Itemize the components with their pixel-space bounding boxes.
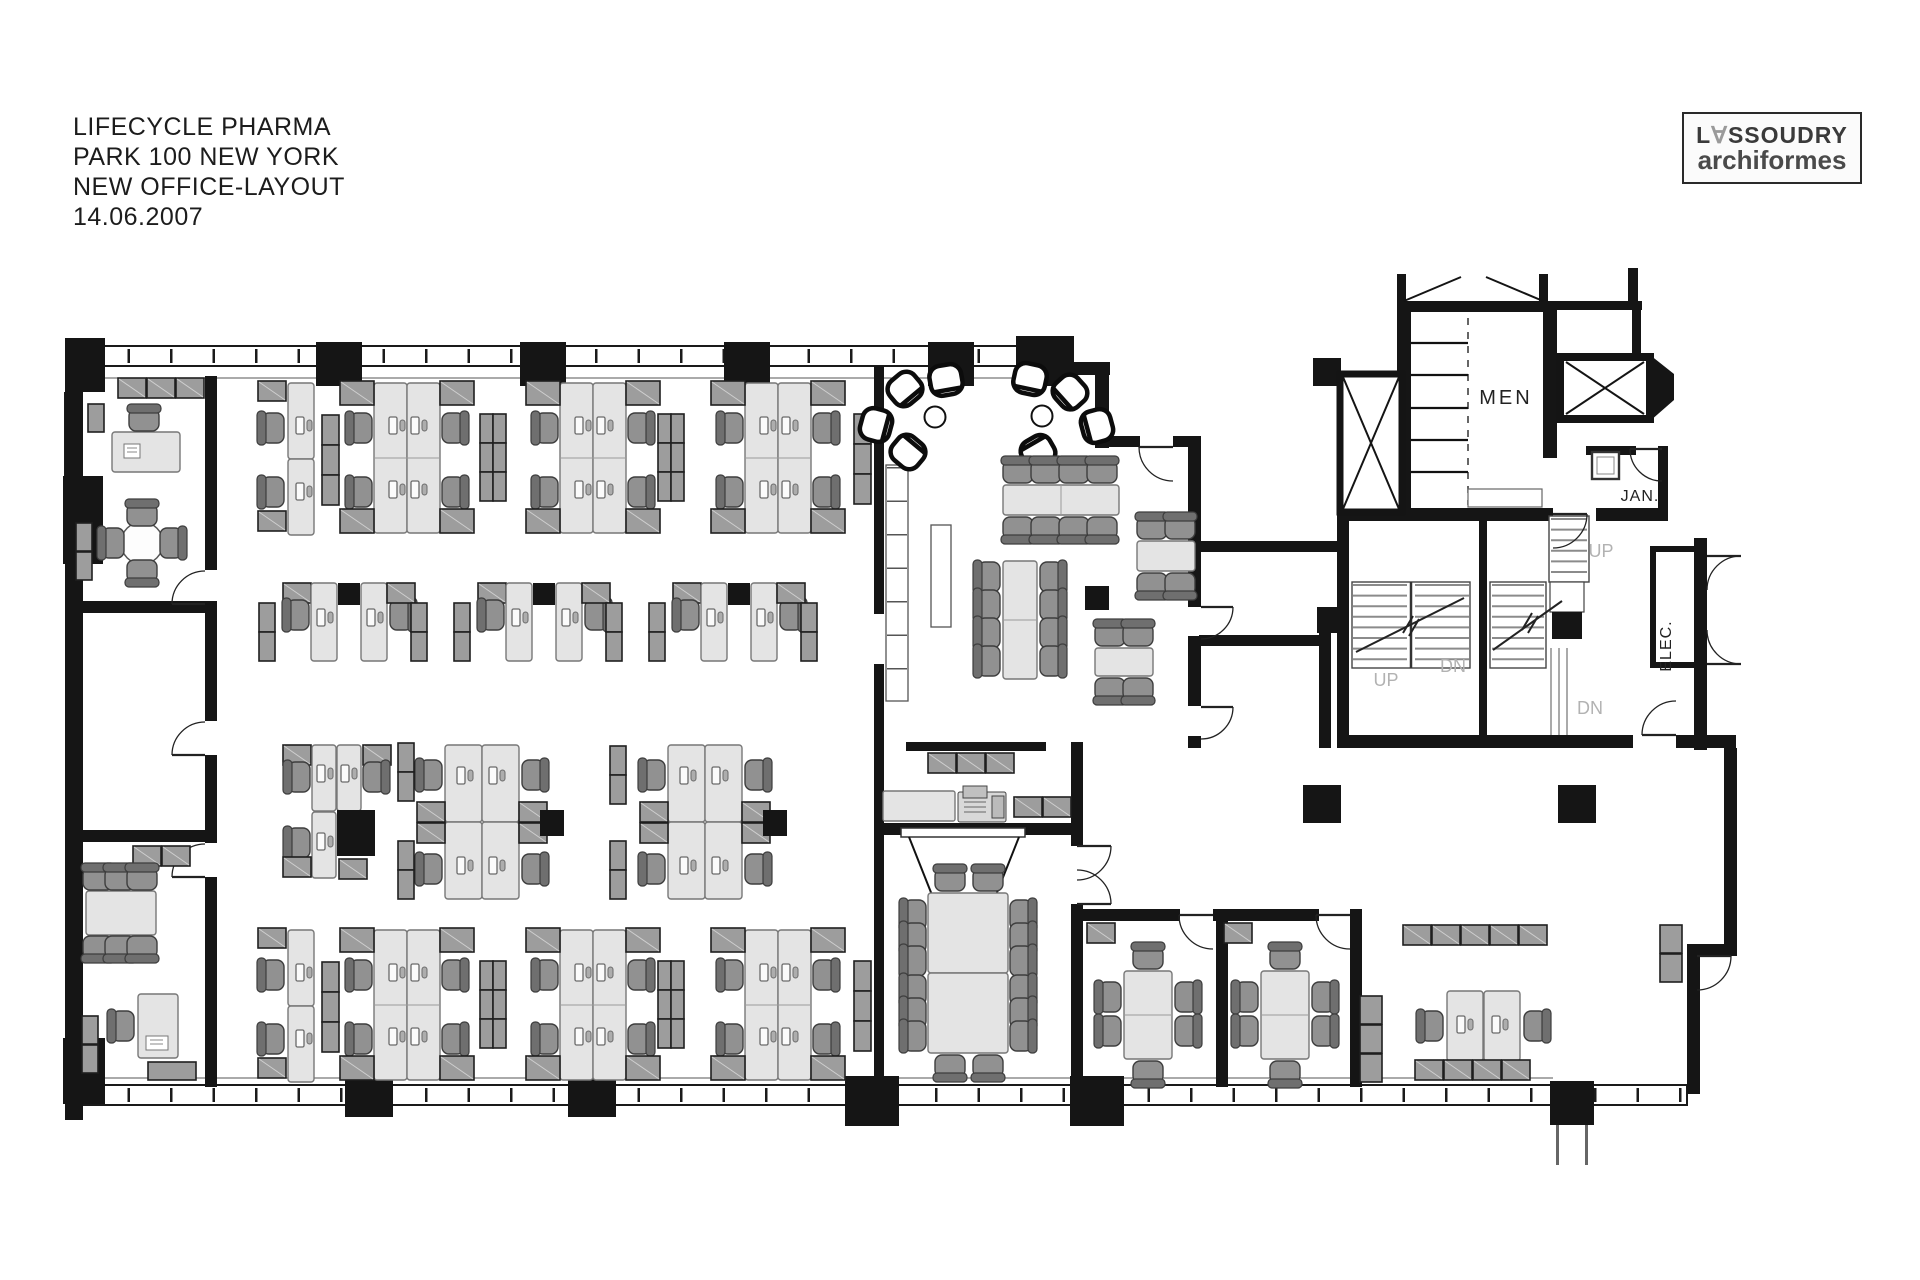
shelf [886, 465, 908, 701]
table [1137, 541, 1195, 571]
cabinet [1360, 1025, 1382, 1053]
chair [1524, 1009, 1551, 1043]
column [1550, 1081, 1594, 1125]
stair-down-label-right: DN [1577, 698, 1603, 718]
cabinet [440, 509, 474, 533]
meeting-room-2 [1224, 923, 1339, 1088]
lounge-chair [857, 406, 894, 445]
cabinet [176, 378, 204, 398]
cabinet-block [398, 841, 414, 899]
cabinet [440, 1056, 474, 1080]
cabinet [440, 381, 474, 405]
cabinet [986, 753, 1014, 773]
cabinet-block [398, 743, 414, 801]
lounge-area [857, 361, 1197, 705]
column [568, 1079, 616, 1117]
cabinet [147, 378, 175, 398]
chair [125, 863, 159, 890]
cabinet [82, 1045, 98, 1073]
cabinet [928, 753, 956, 773]
copy-area [883, 753, 1071, 822]
chair [1121, 619, 1155, 646]
cabinet [626, 509, 660, 533]
cabinet [76, 552, 92, 580]
chair [933, 1055, 967, 1082]
column [1558, 785, 1596, 823]
chair [125, 936, 159, 963]
chair [1010, 1019, 1037, 1053]
stair-up-label-right: UP [1588, 541, 1613, 561]
cabinet [811, 381, 845, 405]
vent-shaft [1340, 374, 1402, 512]
cabinet [76, 523, 92, 551]
cabinet [1415, 1060, 1443, 1080]
chair [107, 1009, 134, 1043]
chair [127, 404, 161, 431]
janitor-closet [1592, 452, 1619, 479]
column [1303, 785, 1341, 823]
column [520, 342, 566, 386]
desk-pair [259, 583, 427, 661]
cabinet [1360, 1054, 1382, 1082]
cabinet-block [480, 961, 506, 1048]
desk-cluster [257, 928, 339, 1082]
cabinet [626, 928, 660, 952]
cabinet [711, 381, 745, 405]
open-office-center-row [283, 743, 787, 899]
cabinet [1490, 925, 1518, 945]
cabinet [1014, 797, 1042, 817]
chair [973, 644, 1000, 678]
cabinet [1444, 1060, 1472, 1080]
conference-room [899, 828, 1037, 1082]
janitor-label: JAN. [1621, 488, 1660, 505]
desk [112, 432, 180, 472]
meeting-table [86, 891, 156, 935]
column [345, 1079, 393, 1117]
table [1095, 648, 1153, 676]
cabinet [526, 509, 560, 533]
column [316, 342, 362, 386]
chair [125, 499, 159, 526]
stair-up-label-left: UP [1373, 670, 1398, 690]
lounge-chair [1011, 361, 1049, 397]
chair [160, 526, 187, 560]
office-bottom-left [81, 846, 196, 1080]
electrical-label: ELEC. [1658, 620, 1675, 671]
open-office-mid-row [259, 583, 817, 661]
cabinet [526, 381, 560, 405]
cabinet [82, 1016, 98, 1044]
chair [971, 1055, 1005, 1082]
cabinet [957, 753, 985, 773]
cabinet [1224, 923, 1252, 943]
counter [883, 791, 955, 821]
cabinet [1087, 923, 1115, 943]
cabinet [711, 928, 745, 952]
cabinet [626, 381, 660, 405]
column [763, 810, 787, 836]
cabinet [118, 378, 146, 398]
open-office-top-row [257, 381, 871, 535]
cabinet [1432, 925, 1460, 945]
desk-cluster-l [283, 745, 391, 879]
cabinet-block [480, 414, 506, 501]
lounge-chair [883, 367, 927, 411]
office-bottom-right [1360, 925, 1682, 1082]
chair [1416, 1009, 1443, 1043]
chair [1163, 573, 1197, 600]
desk [1484, 991, 1520, 1061]
cabinet [1043, 797, 1071, 817]
counter [931, 525, 951, 627]
stairwell-right [1490, 516, 1589, 735]
meeting-table [1094, 942, 1202, 1088]
printer [958, 786, 1006, 822]
chair [1121, 678, 1155, 705]
desk-cluster [415, 745, 549, 899]
cabinet [148, 1062, 196, 1080]
cabinet [340, 928, 374, 952]
cabinet [440, 928, 474, 952]
chair [97, 526, 124, 560]
cabinet [711, 509, 745, 533]
desk-pair [454, 583, 622, 661]
cabinet [526, 928, 560, 952]
round-table [121, 522, 163, 564]
vanity-counter [1468, 489, 1542, 507]
cabinet [1461, 925, 1489, 945]
cabinet-block [610, 841, 626, 899]
open-office-bottom-row [257, 928, 871, 1082]
cabinet [711, 1056, 745, 1080]
cabinet-block [658, 414, 684, 501]
floor-plan-svg: MEN JAN. ELEC. UP UP DN DN [0, 0, 1920, 1280]
lounge-chair [1078, 407, 1115, 446]
cabinet-block [854, 961, 871, 1051]
mens-room-label: MEN [1479, 387, 1532, 409]
chair [1085, 517, 1119, 544]
cabinet [1360, 996, 1382, 1024]
desk-cluster [257, 381, 339, 535]
column [845, 1076, 899, 1126]
desk-cluster [638, 745, 772, 899]
cabinet [811, 509, 845, 533]
cabinet [1473, 1060, 1501, 1080]
chair [899, 1019, 926, 1053]
cabinet [1660, 954, 1682, 982]
chair [933, 864, 967, 891]
cabinet [1660, 925, 1682, 953]
cabinet [811, 928, 845, 952]
projection-screen [901, 828, 1025, 837]
chair [125, 560, 159, 587]
stair-down-label-left: DN [1440, 656, 1466, 676]
chair [1040, 644, 1067, 678]
chair [1163, 512, 1197, 539]
cabinet [811, 1056, 845, 1080]
mens-room [1411, 318, 1542, 507]
side-table [925, 407, 946, 428]
side-table [1032, 406, 1053, 427]
desk-pair [649, 583, 817, 661]
elevator [1560, 355, 1674, 421]
column [724, 342, 770, 386]
cabinet [526, 1056, 560, 1080]
cabinet [340, 1056, 374, 1080]
cabinet-block [610, 746, 626, 804]
conference-table [928, 893, 1008, 973]
cabinet [340, 381, 374, 405]
floor-plan-page: LIFECYCLE PHARMAPARK 100 NEW YORKNEW OFF… [0, 0, 1920, 1280]
meeting-room-1 [1087, 923, 1202, 1088]
chair [971, 864, 1005, 891]
mop-sink [1592, 452, 1619, 479]
chair [1085, 456, 1119, 483]
cabinet [340, 509, 374, 533]
cabinet [88, 404, 104, 432]
column [1085, 586, 1109, 610]
cabinet [1403, 925, 1431, 945]
meeting-table [1231, 942, 1339, 1088]
cabinet [1502, 1060, 1530, 1080]
column [540, 810, 564, 836]
cabinet [626, 1056, 660, 1080]
cabinet [162, 846, 190, 866]
cabinet-block [658, 961, 684, 1048]
lounge-chair [928, 362, 965, 397]
cabinet [1519, 925, 1547, 945]
